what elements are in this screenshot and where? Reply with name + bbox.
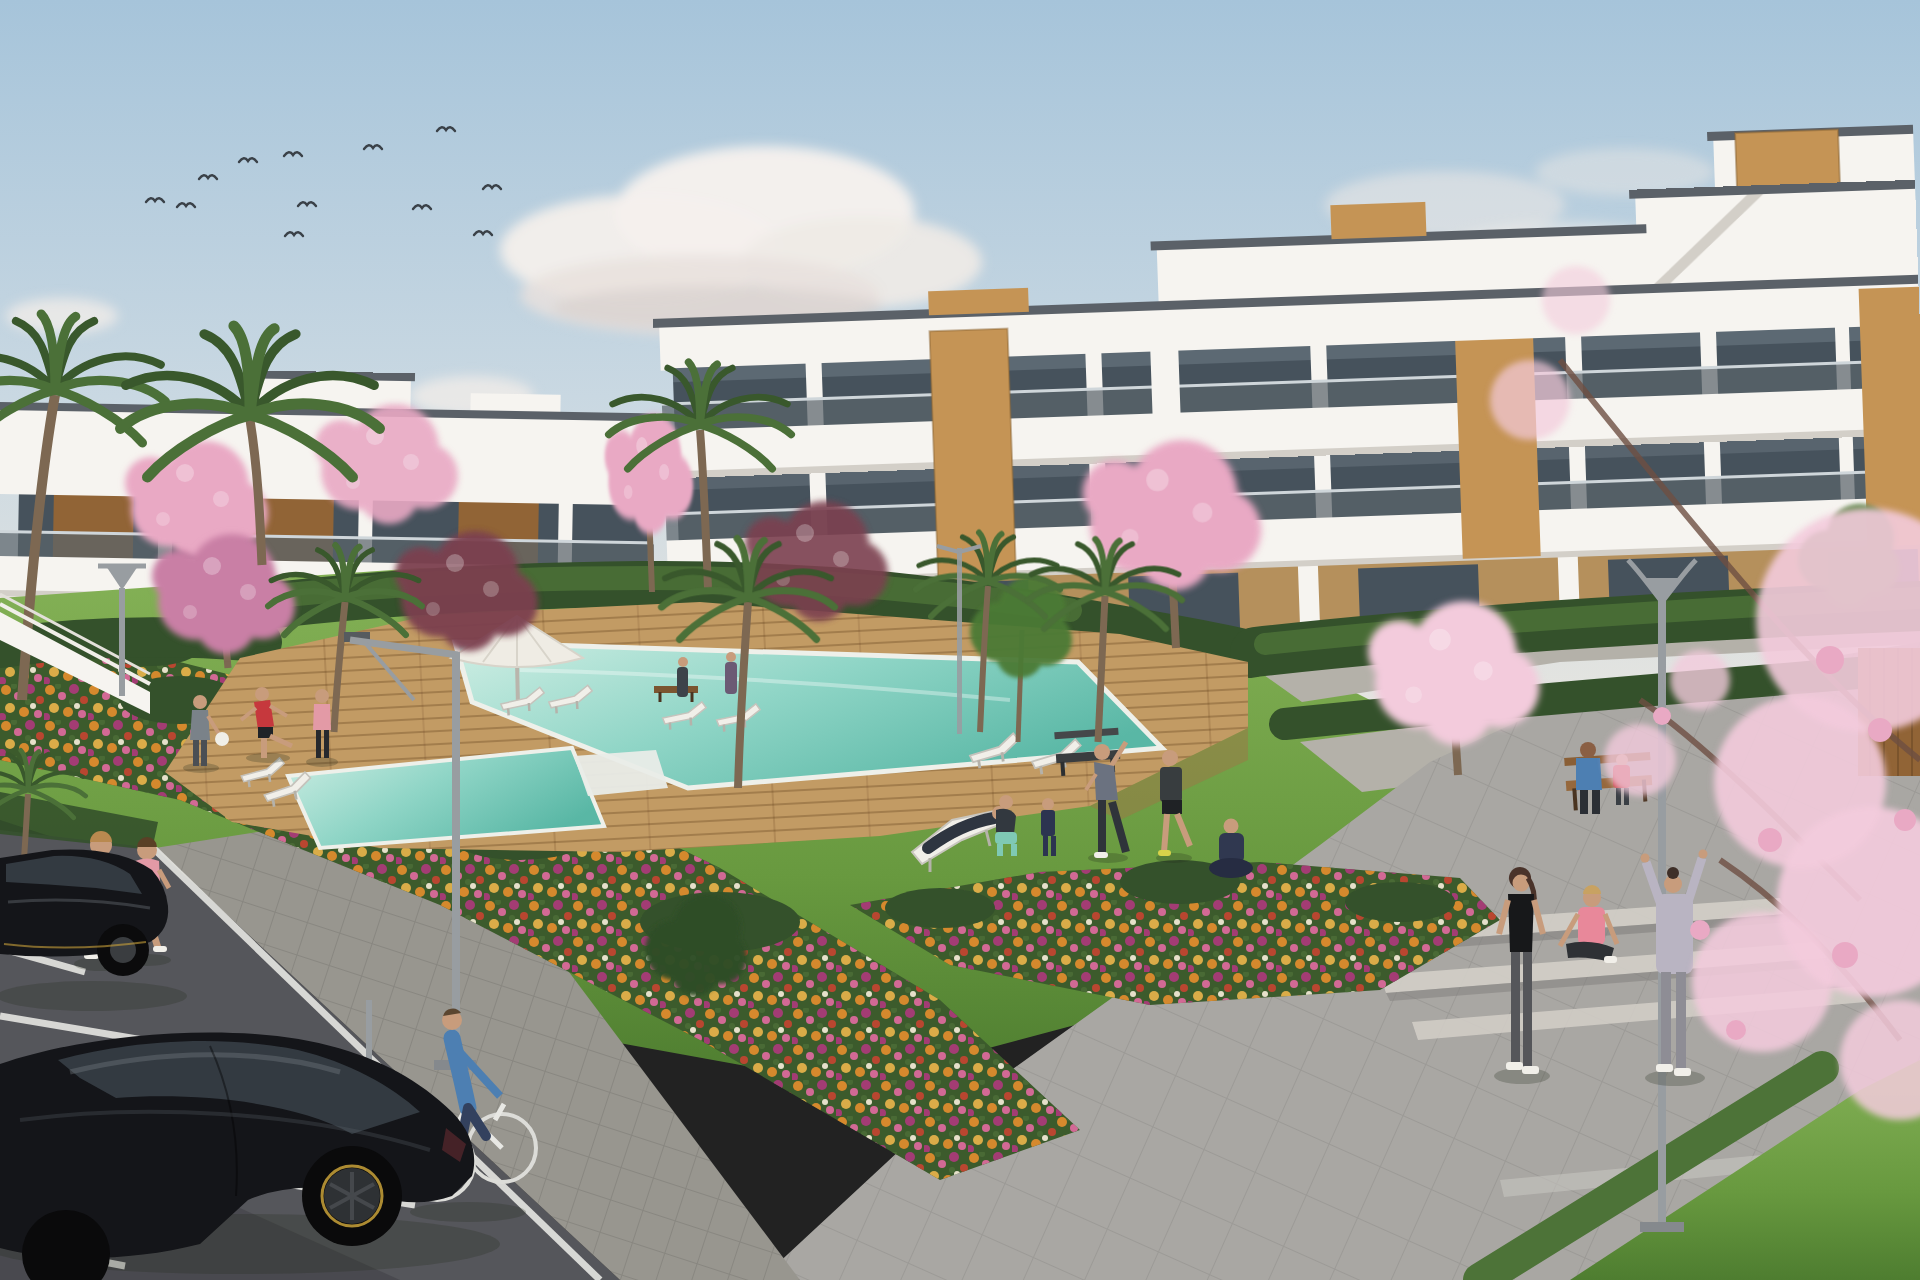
timber-pier (929, 329, 1016, 578)
person-walkway-a (677, 657, 688, 697)
rendering-canvas: New-build white apartment complex with c… (0, 0, 1920, 1280)
pool-steps (574, 750, 668, 796)
scene-svg (0, 0, 1920, 1280)
person-walkway-b (725, 652, 737, 694)
